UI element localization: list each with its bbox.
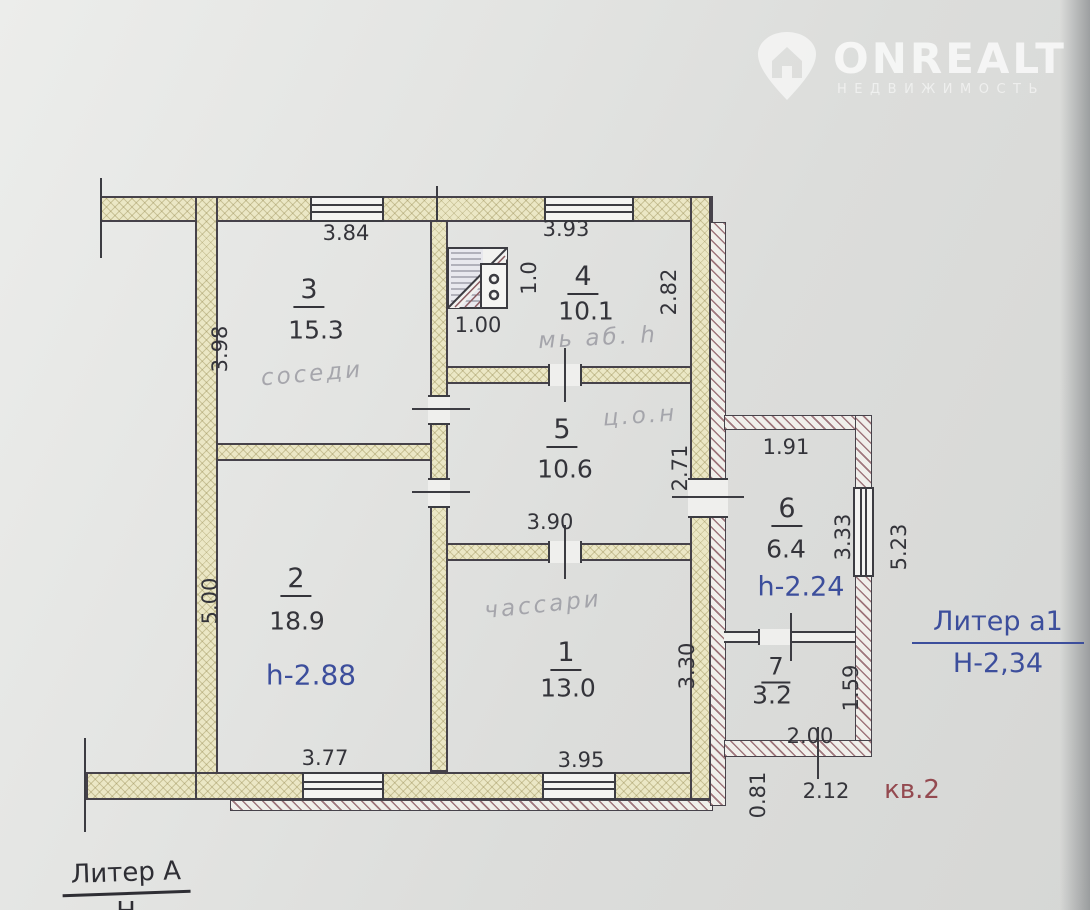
stove-symbol xyxy=(447,247,508,309)
room-3-area: 15.3 xyxy=(288,316,344,345)
wall-room3-room2 xyxy=(216,443,432,461)
dimension-3.33: 3.33 xyxy=(831,514,855,561)
wall-left xyxy=(195,196,218,800)
room-6-area: 6.4 xyxy=(766,535,806,564)
building-annotation-block: Литер А Н xyxy=(62,858,190,910)
room-7-number: 7 xyxy=(761,653,790,684)
dimension-3.95: 3.95 xyxy=(558,748,605,772)
handwritten-note-room5: ц.о.н xyxy=(602,400,678,431)
handwritten-note-room1: чассари xyxy=(483,586,603,624)
annex-annotation-block: Литер a1 Н-2,34 xyxy=(912,606,1084,679)
room-3-number: 3 xyxy=(293,274,324,308)
room-1-number: 1 xyxy=(550,637,581,671)
room-6-height-note: h-2.24 xyxy=(758,572,845,603)
wall-stub-top-end-cap xyxy=(100,178,102,258)
room-5-area: 10.6 xyxy=(537,455,593,484)
door-tick xyxy=(564,348,566,402)
dimension-1.91: 1.91 xyxy=(763,435,810,459)
dimension-2.71: 2.71 xyxy=(668,445,692,492)
door-room5-room6 xyxy=(688,478,728,518)
annex-height-label: Н-2,34 xyxy=(953,648,1043,679)
dimension-0.81: 0.81 xyxy=(746,772,770,819)
dimension-3.77: 3.77 xyxy=(302,746,349,770)
onrealt-pin-house-icon xyxy=(752,30,822,102)
door-tick xyxy=(672,496,744,498)
onrealt-subtitle-watermark: НЕДВИЖИМОСТЬ xyxy=(837,82,1045,97)
dimension-1.00: 1.00 xyxy=(455,313,502,337)
room-2-height-note: h-2.88 xyxy=(266,659,356,692)
door-tick xyxy=(412,408,470,410)
dimension-1.0: 1.0 xyxy=(517,261,541,294)
building-label-partial: Н xyxy=(62,897,190,910)
dimension-5.23: 5.23 xyxy=(887,524,911,571)
wall-bottom xyxy=(195,772,713,800)
dimension-3.30: 3.30 xyxy=(675,643,699,690)
dimension-1.59: 1.59 xyxy=(839,665,863,712)
wall-top xyxy=(195,196,713,222)
room-4-area: 10.1 xyxy=(558,297,614,326)
wall-stub-bottom-end-cap xyxy=(84,738,86,832)
handwritten-note-room3: соседи xyxy=(260,357,364,392)
annex-label: Литер a1 xyxy=(912,606,1084,644)
dimension-3.98: 3.98 xyxy=(208,326,232,373)
apartment-label: кв.2 xyxy=(884,775,940,805)
scanned-floor-plan: ONREALT НЕДВИЖИМОСТЬ xyxy=(0,0,1090,910)
building-label: Литер А xyxy=(61,856,190,897)
room-4-number: 4 xyxy=(567,261,598,295)
window-top-room3 xyxy=(310,196,384,222)
dimension-3.84: 3.84 xyxy=(323,221,370,245)
room-1-area: 13.0 xyxy=(540,674,596,703)
wall-stub-bottom-left xyxy=(86,772,198,800)
room-2-number: 2 xyxy=(280,563,311,597)
dimension-2.82: 2.82 xyxy=(657,269,681,316)
dimension-5.00: 5.00 xyxy=(198,578,222,625)
annex-wall-top xyxy=(724,415,872,430)
room-6-number: 6 xyxy=(771,493,802,527)
dimension-2.12: 2.12 xyxy=(803,779,850,803)
wall-bottom-outer-hatch xyxy=(230,800,713,811)
door-room6-room7 xyxy=(758,629,792,645)
dimension-3.93: 3.93 xyxy=(543,217,590,241)
door-tick xyxy=(412,491,470,493)
onrealt-brand-watermark: ONREALT xyxy=(833,34,1067,83)
room-2-area: 18.9 xyxy=(269,607,325,636)
room-5-number: 5 xyxy=(546,414,577,448)
door-room3-room5 xyxy=(428,395,450,425)
wall-stub-top-left xyxy=(100,196,198,222)
dimension-3.90: 3.90 xyxy=(527,510,574,534)
window-bottom-room1 xyxy=(542,772,616,800)
handwritten-note-room4: мь аб. h xyxy=(538,322,659,354)
dimension-2.00: 2.00 xyxy=(787,724,834,748)
window-bottom-room2 xyxy=(302,772,384,800)
room-7-area: 3.2 xyxy=(752,681,792,710)
door-room2-room5 xyxy=(428,478,450,508)
photo-edge-shadow xyxy=(1060,0,1090,910)
annex-window-room6 xyxy=(853,487,874,577)
